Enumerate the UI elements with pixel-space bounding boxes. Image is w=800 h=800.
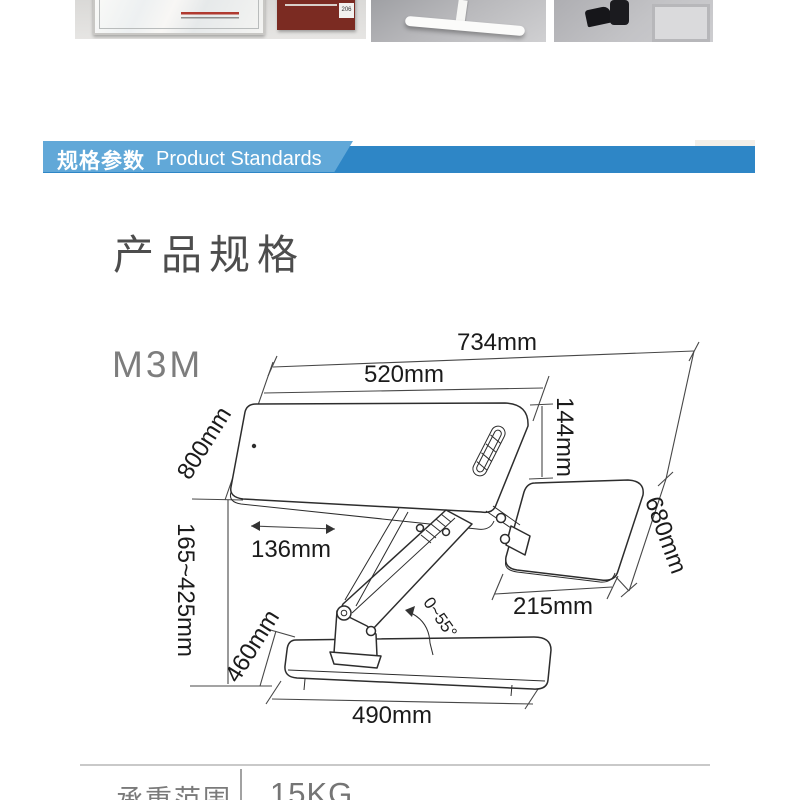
banner-title-en: Product Standards xyxy=(156,148,322,171)
dim-surface-depth: 800mm xyxy=(172,402,237,484)
dim-tray-drop: 144mm xyxy=(551,397,578,477)
spec-column-divider xyxy=(240,769,242,800)
diagram-base xyxy=(285,637,551,696)
spec-row-label: 承重范围 xyxy=(116,778,232,800)
spec-diagram: 734mm 520mm 800mm 144mm 165~425mm 136mm … xyxy=(0,0,800,800)
dim-surface-offset: 136mm xyxy=(251,536,331,563)
dim-base-width: 490mm xyxy=(352,702,432,729)
dim-height-range: 165~425mm xyxy=(172,523,199,657)
banner-title-cn: 规格参数 xyxy=(57,145,145,175)
diagram-worktop xyxy=(230,403,528,529)
dim-overall-width: 734mm xyxy=(457,329,537,356)
worktop-hole xyxy=(252,444,256,448)
product-detail-page: 206 规格参数 Product Standards 产品规格 M3M xyxy=(0,0,800,800)
dim-tilt-range: 0~55° xyxy=(419,594,460,642)
spec-separator xyxy=(80,764,710,766)
diagram-keyboard-tray xyxy=(505,480,643,582)
banner-title: 规格参数 Product Standards xyxy=(57,146,322,173)
dim-base-depth: 460mm xyxy=(220,605,285,687)
dim-tray-width: 215mm xyxy=(513,593,593,620)
spec-row-value: 15KG xyxy=(270,776,353,800)
dim-surface-width: 520mm xyxy=(364,361,444,388)
